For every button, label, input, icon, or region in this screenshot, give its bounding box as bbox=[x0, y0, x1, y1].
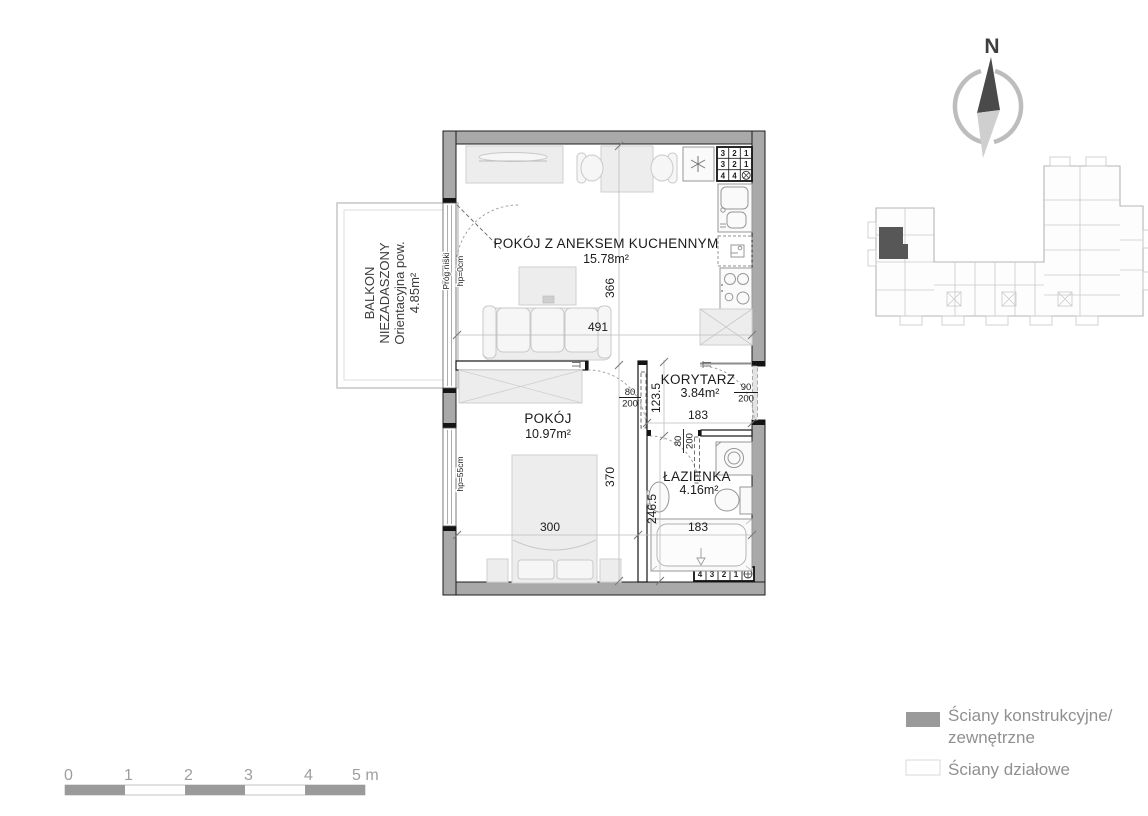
scale-bar: 0 1 2 3 4 5 m bbox=[64, 767, 379, 795]
dim-living-height: 366 bbox=[603, 278, 617, 298]
legend-structural-line1: Ściany konstrukcyjne/ bbox=[948, 706, 1113, 725]
room-living-name: POKÓJ Z ANEKSEM KUCHENNYM bbox=[493, 236, 718, 251]
balcony-line2: NIEZADASZONY bbox=[377, 242, 392, 343]
grid-cell: 1 bbox=[744, 160, 749, 169]
dim-corridor-height: 123.5 bbox=[649, 383, 663, 413]
room-bedroom-name: POKÓJ bbox=[524, 411, 571, 426]
wardrobe bbox=[459, 370, 582, 403]
stove bbox=[720, 268, 752, 310]
grid-cell: 3 bbox=[721, 149, 726, 158]
fridge bbox=[683, 147, 714, 181]
bed bbox=[487, 455, 621, 583]
compass-needle-south bbox=[977, 110, 1000, 158]
building-key-plan bbox=[868, 157, 1148, 325]
room-corridor-name: KORYTARZ bbox=[661, 372, 736, 387]
legend-swatch-structural bbox=[906, 712, 940, 727]
balcony-door-window bbox=[443, 203, 456, 388]
grid-cell: 4 bbox=[732, 172, 737, 181]
dim-bedroom-height: 370 bbox=[603, 467, 617, 487]
coffee-table bbox=[519, 267, 576, 305]
entrance-door-height: 200 bbox=[738, 394, 754, 405]
compass-north-label: N bbox=[984, 35, 999, 58]
grid-cell: 1 bbox=[744, 149, 749, 158]
bathroom-door-width: 80 bbox=[673, 436, 684, 447]
grid-cell: 3 bbox=[721, 160, 726, 169]
balcony-line3: Orientacyjna pow. bbox=[392, 241, 407, 344]
legend-structural-line2: zewnętrzne bbox=[948, 728, 1035, 747]
room-bedroom-area: 10.97m² bbox=[525, 427, 571, 441]
dim-living-width: 491 bbox=[588, 320, 608, 334]
balcony-line4: 4.85m² bbox=[407, 272, 422, 313]
floor-plan-canvas: BALKON NIEZADASZONY Orientacyjna pow. 4.… bbox=[0, 0, 1148, 816]
pillow bbox=[518, 560, 554, 579]
scale-label-0: 0 bbox=[64, 767, 73, 784]
bathroom-door-label: 80 200 bbox=[673, 429, 696, 453]
bathroom-door-height: 200 bbox=[685, 433, 696, 449]
dim-bathroom-height: 246.5 bbox=[645, 494, 659, 524]
scale-label-3: 3 bbox=[244, 767, 253, 784]
grid-cell: 2 bbox=[732, 149, 737, 158]
room-living-area: 15.78m² bbox=[583, 252, 629, 266]
kitchen-cabinet bbox=[700, 309, 752, 345]
toilet bbox=[715, 487, 752, 514]
dishwasher bbox=[718, 236, 752, 266]
sideboard bbox=[466, 146, 563, 183]
dim-corridor-width: 183 bbox=[688, 408, 708, 422]
room-corridor-area: 3.84m² bbox=[681, 386, 720, 400]
scale-label-2: 2 bbox=[184, 767, 193, 784]
scale-label-5: 5 m bbox=[352, 767, 379, 784]
legend: Ściany konstrukcyjne/ zewnętrzne Ściany … bbox=[906, 706, 1113, 779]
balcony-line1: BALKON bbox=[362, 267, 377, 320]
room-bathroom-name: ŁAZIENKA bbox=[663, 469, 731, 484]
balcony-label: BALKON NIEZADASZONY Orientacyjna pow. 4.… bbox=[362, 241, 422, 344]
floor-plan-page: BALKON NIEZADASZONY Orientacyjna pow. 4.… bbox=[0, 0, 1148, 816]
balcony: BALKON NIEZADASZONY Orientacyjna pow. 4.… bbox=[337, 203, 458, 388]
grid-cell: 2 bbox=[732, 160, 737, 169]
scale-label-4: 4 bbox=[304, 767, 313, 784]
pillow bbox=[557, 560, 593, 579]
dining-table bbox=[577, 146, 677, 192]
nightstand-left bbox=[487, 559, 508, 582]
legend-partition-label: Ściany działowe bbox=[948, 760, 1070, 779]
room-bathroom-area: 4.16m² bbox=[680, 483, 719, 497]
scale-label-1: 1 bbox=[124, 767, 133, 784]
highlighted-unit-notch bbox=[903, 244, 908, 259]
compass-needle-north bbox=[977, 57, 1000, 113]
nightstand-right bbox=[600, 559, 621, 582]
compass: N bbox=[955, 35, 1021, 158]
grid-cell: 4 bbox=[721, 172, 726, 181]
bedroom-sill-label: hp=55cm bbox=[455, 456, 465, 491]
dim-bathroom-width: 183 bbox=[688, 520, 708, 534]
bedroom-door-width: 80 bbox=[625, 387, 636, 398]
legend-swatch-partition bbox=[906, 760, 940, 775]
chair-left bbox=[581, 155, 603, 181]
balcony-sill-label: hp=0cm bbox=[455, 256, 465, 286]
bedroom-door-height: 200 bbox=[622, 399, 638, 410]
chair-right bbox=[651, 155, 673, 181]
meter-grid-top: 3 2 1 3 2 1 4 4 bbox=[717, 147, 752, 181]
entrance-door-width: 90 bbox=[741, 382, 752, 393]
dim-bedroom-width: 300 bbox=[540, 520, 560, 534]
kitchen-sink bbox=[718, 184, 752, 232]
balcony-threshold-label: Próg niski bbox=[441, 252, 451, 289]
highlighted-unit bbox=[879, 227, 903, 259]
